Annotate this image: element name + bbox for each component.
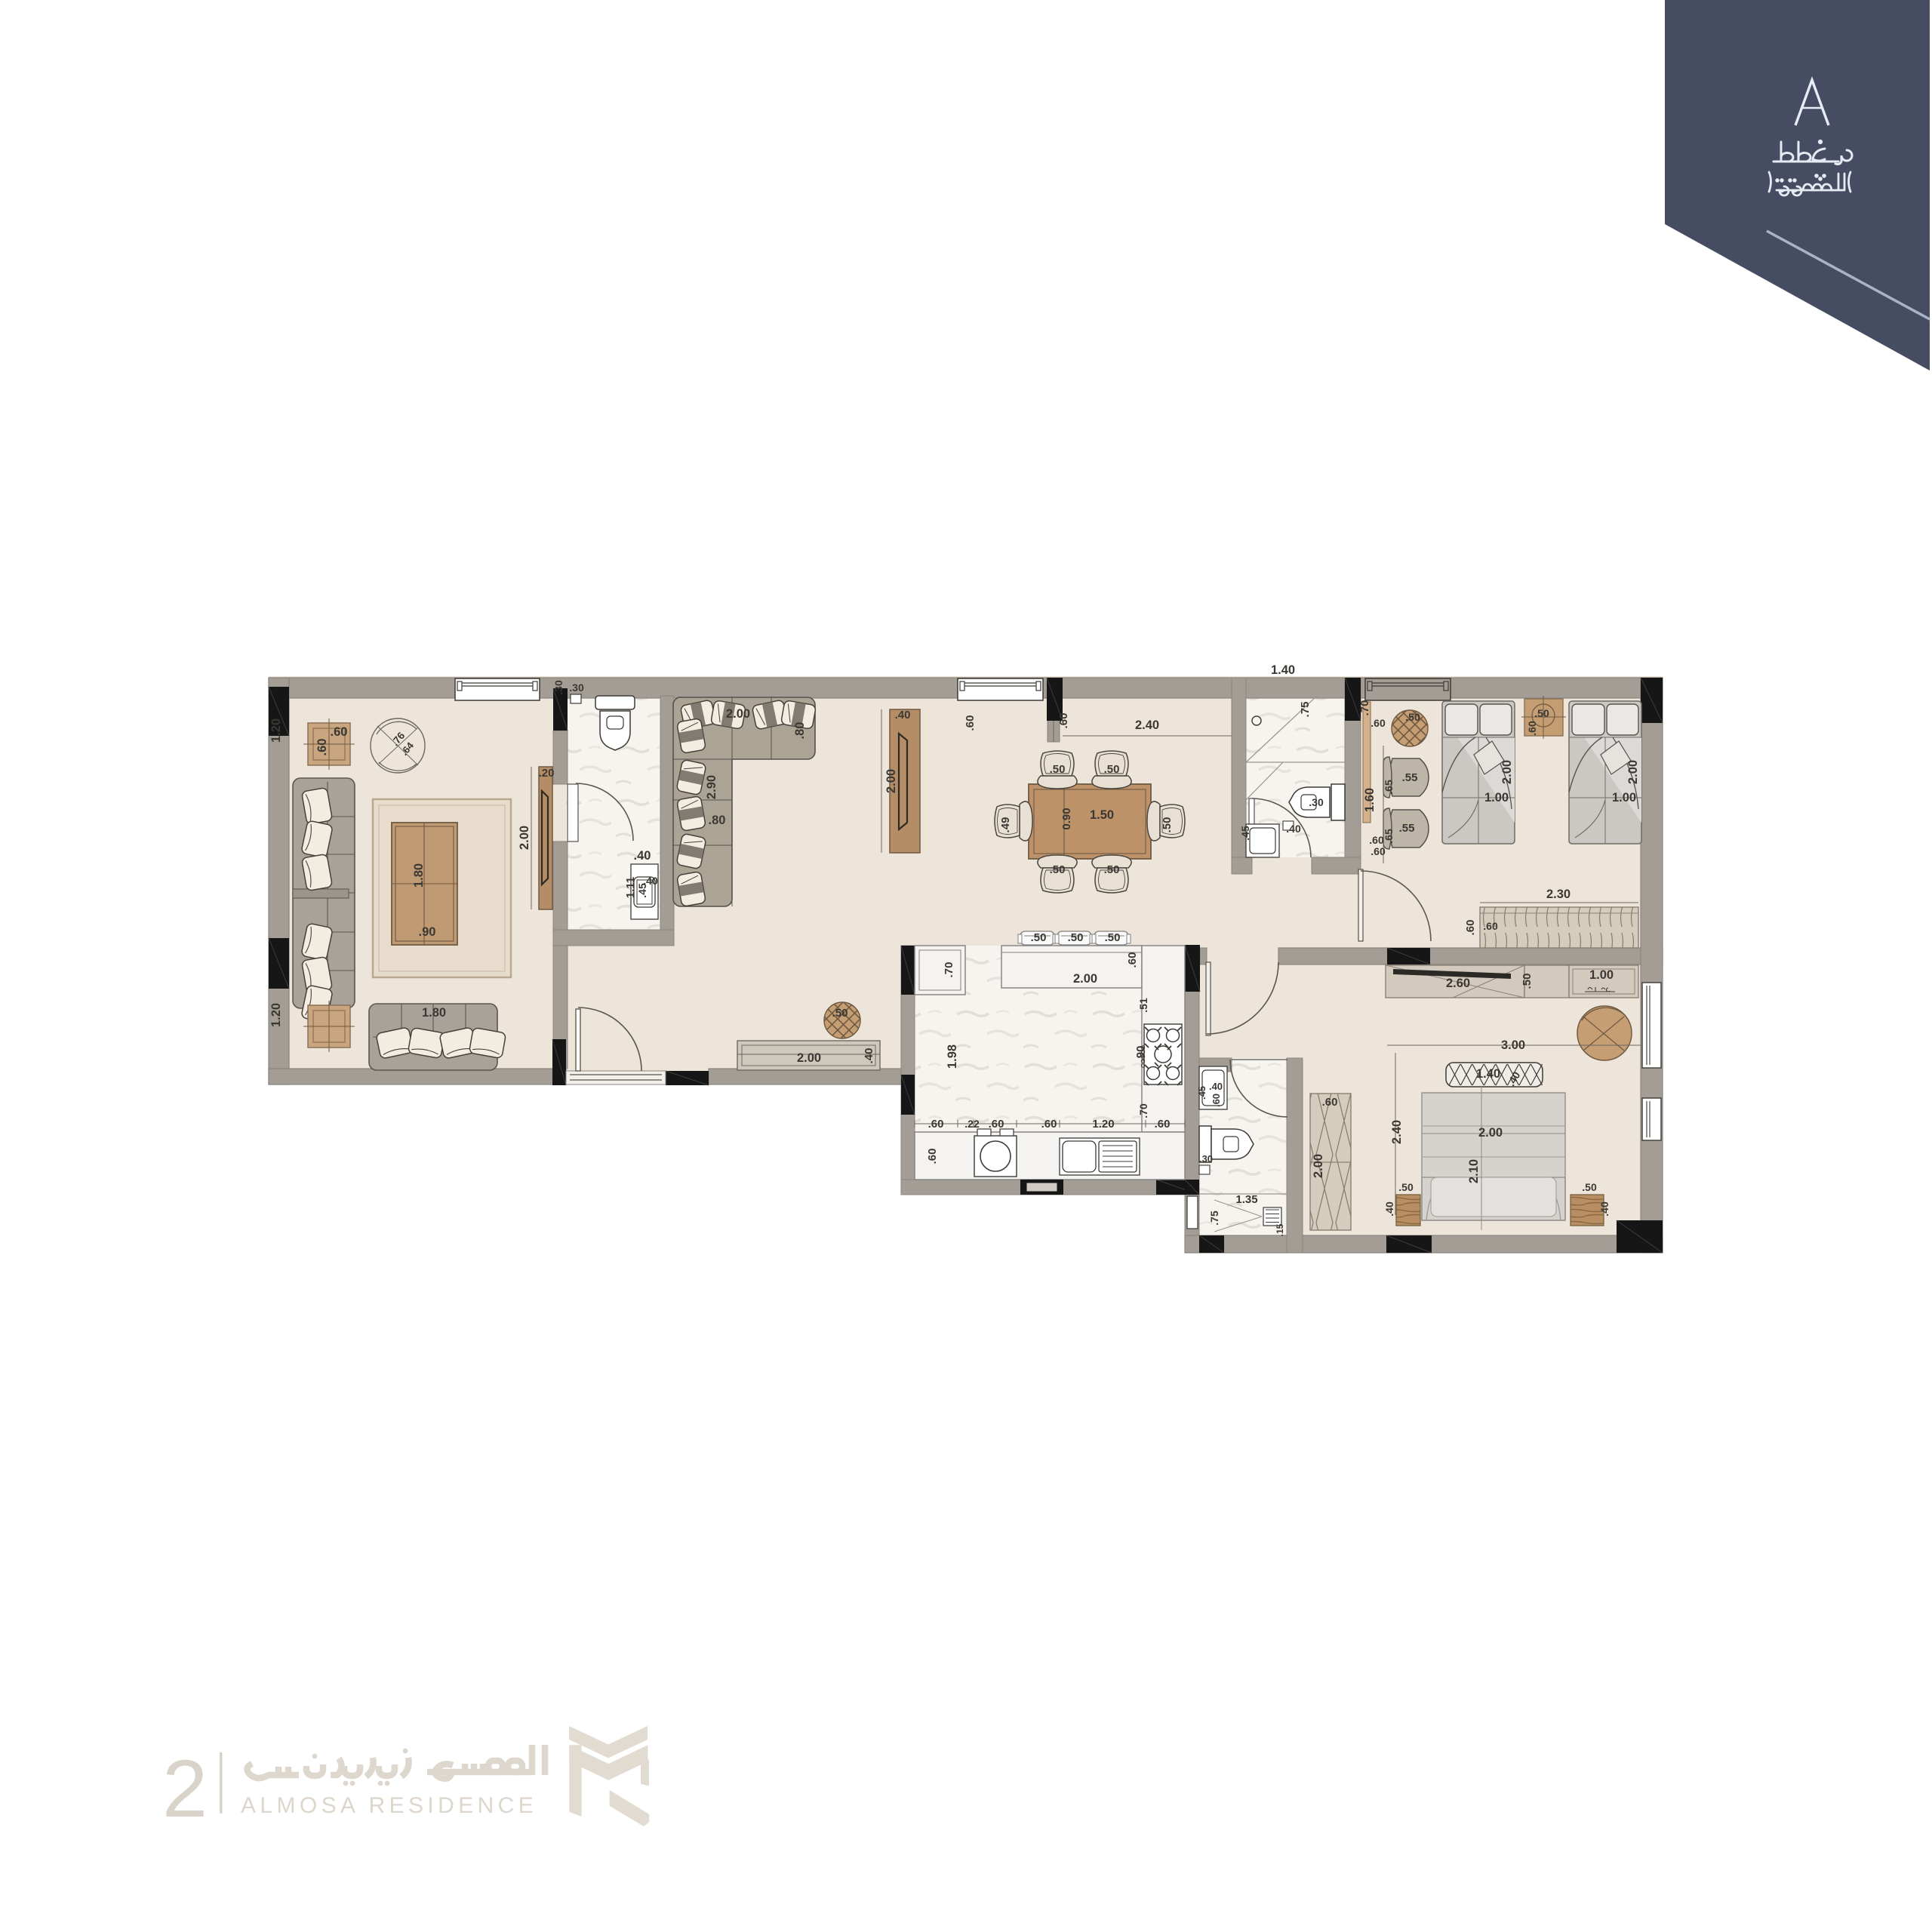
svg-text:.49: .49: [999, 817, 1012, 833]
svg-text:.60: .60: [1369, 834, 1384, 846]
svg-text:1.00: 1.00: [1612, 791, 1636, 804]
svg-text:.40: .40: [1209, 1081, 1223, 1092]
svg-text:.75: .75: [1299, 702, 1312, 718]
svg-text:.60: .60: [1126, 952, 1139, 968]
svg-text:2.00: 2.00: [1478, 1126, 1503, 1140]
svg-text:.30: .30: [1199, 1153, 1213, 1164]
svg-text:1.40: 1.40: [1476, 1067, 1500, 1081]
svg-text:.50: .50: [1105, 931, 1121, 944]
svg-text:2.00: 2.00: [1626, 760, 1640, 784]
svg-text:.60: .60: [1041, 1118, 1057, 1131]
svg-text:.60: .60: [1322, 1096, 1338, 1109]
svg-text:.60: .60: [1371, 717, 1386, 729]
svg-text:.40: .40: [895, 709, 911, 721]
svg-text:.60: .60: [1057, 713, 1070, 729]
svg-text:1.20: 1.20: [269, 1003, 283, 1027]
svg-text:.60: .60: [926, 1149, 939, 1164]
svg-text:.50: .50: [1534, 707, 1549, 719]
svg-text:.70: .70: [943, 962, 955, 978]
svg-text:1.20: 1.20: [269, 718, 283, 743]
svg-text:.65: .65: [1383, 780, 1395, 795]
svg-text:.90: .90: [419, 925, 436, 939]
svg-text:.60: .60: [1464, 920, 1477, 936]
svg-text:.50: .50: [1582, 1181, 1597, 1193]
svg-text:.60: .60: [1211, 1094, 1222, 1107]
svg-text:.60: .60: [989, 1118, 1004, 1131]
svg-text:.60: .60: [331, 725, 348, 739]
svg-text:.40: .40: [643, 875, 658, 887]
svg-text:.15: .15: [1275, 1223, 1285, 1236]
svg-text:.40: .40: [1286, 823, 1301, 835]
svg-text:.40: .40: [1383, 1201, 1395, 1217]
svg-text:.50: .50: [1068, 931, 1084, 944]
svg-text:.60: .60: [1483, 920, 1498, 932]
svg-text:1.80: 1.80: [422, 1006, 446, 1020]
svg-text:.75: .75: [1208, 1211, 1220, 1226]
svg-text:.50: .50: [832, 1007, 848, 1020]
svg-text:.50: .50: [1050, 863, 1066, 876]
svg-text:1.40: 1.40: [1271, 663, 1295, 677]
svg-text:.50: .50: [1104, 863, 1120, 876]
svg-text:2.10: 2.10: [1467, 1159, 1481, 1183]
svg-text:.80: .80: [709, 814, 726, 827]
svg-text:.50: .50: [1050, 763, 1066, 776]
svg-text:2.40: 2.40: [1390, 1120, 1404, 1144]
svg-text:.45: .45: [1196, 1086, 1207, 1100]
svg-text:.60: .60: [1155, 1118, 1171, 1131]
svg-text:.30: .30: [1309, 796, 1324, 808]
svg-text:.50: .50: [1104, 763, 1120, 776]
svg-text:.22: .22: [964, 1118, 980, 1130]
svg-text:0.90: 0.90: [1060, 808, 1073, 829]
svg-text:1.11: 1.11: [624, 877, 637, 898]
svg-text:.90: .90: [1134, 1046, 1147, 1062]
svg-text:1.98: 1.98: [946, 1044, 959, 1069]
svg-text:1.00: 1.00: [1484, 791, 1509, 804]
svg-text:.60: .60: [928, 1118, 944, 1131]
svg-text:.30: .30: [569, 681, 584, 694]
svg-text:2.30: 2.30: [1546, 888, 1571, 901]
svg-text:2: 2: [162, 1743, 208, 1834]
svg-text:.51: .51: [1137, 998, 1149, 1013]
svg-text:1.35: 1.35: [1235, 1193, 1257, 1206]
svg-text:1.60: 1.60: [1363, 788, 1377, 812]
svg-text:.80: .80: [793, 722, 807, 740]
svg-text:2.40: 2.40: [1135, 718, 1159, 732]
svg-text:.65: .65: [1383, 829, 1395, 844]
svg-text:2.00: 2.00: [1073, 972, 1097, 986]
svg-text:.60: .60: [315, 739, 329, 756]
svg-text:.45: .45: [1239, 826, 1251, 841]
svg-text:1.00: 1.00: [1589, 968, 1614, 982]
svg-text:3.00: 3.00: [1501, 1038, 1525, 1052]
svg-text:.40: .40: [1598, 1201, 1611, 1217]
svg-text:2.00: 2.00: [1500, 760, 1514, 784]
svg-text:.60: .60: [964, 715, 977, 731]
svg-text:.40: .40: [634, 849, 651, 863]
svg-text:.50: .50: [1398, 1181, 1414, 1193]
svg-text:2.90: 2.90: [705, 775, 718, 799]
svg-text:.30: .30: [552, 680, 565, 695]
svg-text:.40: .40: [863, 1048, 875, 1064]
svg-text:2.00: 2.00: [726, 707, 750, 721]
svg-text:.50: .50: [1161, 817, 1174, 833]
svg-text:.70: .70: [1137, 1103, 1149, 1118]
svg-text:1.20: 1.20: [1092, 1118, 1114, 1131]
svg-text:.50: .50: [1031, 931, 1047, 944]
svg-text:2.00: 2.00: [884, 769, 898, 793]
svg-text:.55: .55: [1402, 771, 1418, 784]
svg-text:.20: .20: [539, 767, 555, 780]
svg-text:.50: .50: [1405, 711, 1420, 723]
svg-text:.60: .60: [1371, 845, 1386, 857]
svg-text:.55: .55: [1399, 822, 1415, 835]
svg-text:2.00: 2.00: [1312, 1154, 1325, 1178]
svg-text:2.60: 2.60: [1446, 977, 1470, 990]
svg-text:2.00: 2.00: [518, 826, 531, 850]
svg-text:.50: .50: [1521, 974, 1534, 989]
svg-text:.70: .70: [1358, 700, 1371, 716]
svg-text:ALMOSA RESIDENCE: ALMOSA RESIDENCE: [241, 1793, 537, 1818]
svg-text:1.50: 1.50: [1090, 808, 1114, 822]
svg-text:1.80: 1.80: [412, 863, 426, 888]
svg-text:.60: .60: [1526, 721, 1538, 736]
svg-text:2.00: 2.00: [797, 1051, 821, 1065]
